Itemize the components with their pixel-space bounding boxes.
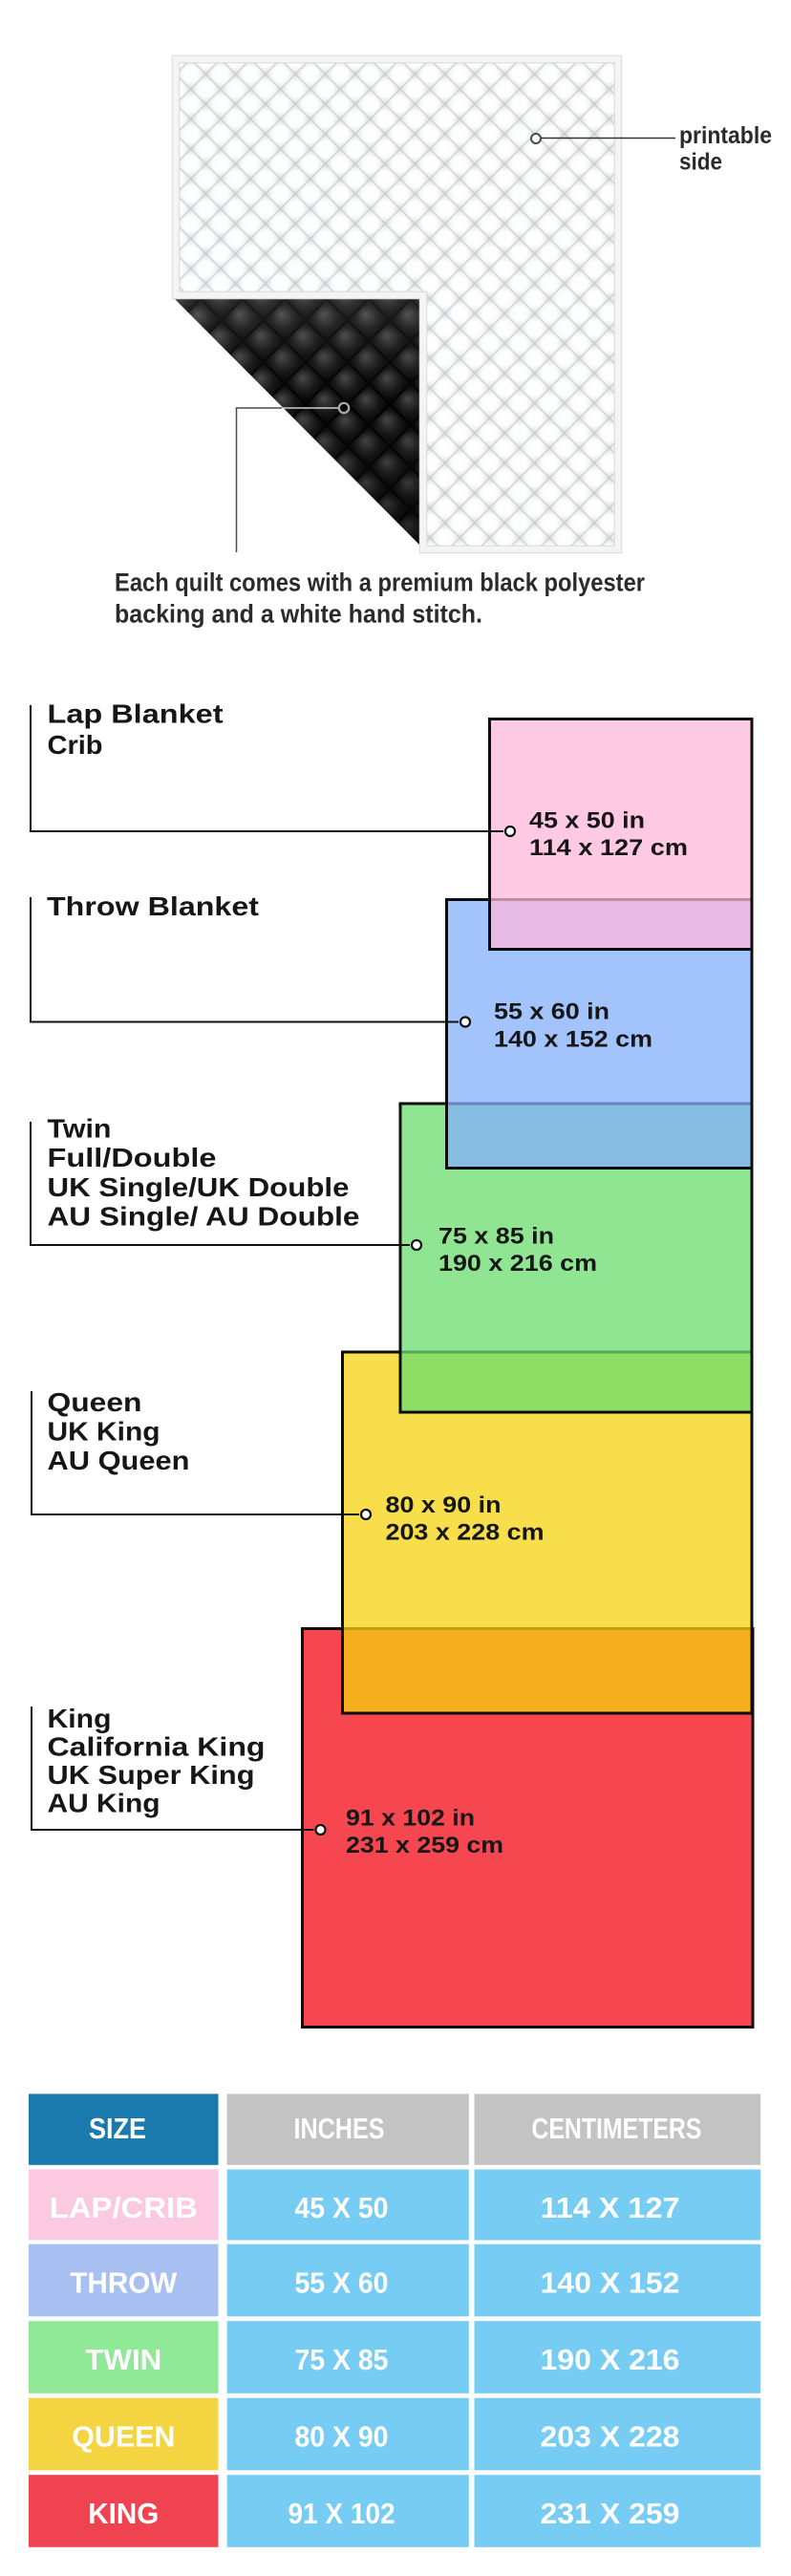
svg-text:203 X 228: 203 X 228 <box>541 2420 680 2454</box>
svg-text:SIZE: SIZE <box>89 2112 146 2145</box>
svg-text:114 X 127: 114 X 127 <box>541 2191 680 2224</box>
svg-text:80 X 90: 80 X 90 <box>295 2420 389 2454</box>
svg-text:Full/Double: Full/Double <box>48 1143 217 1172</box>
svg-text:231 X 259: 231 X 259 <box>541 2497 680 2530</box>
svg-text:AU Queen: AU Queen <box>48 1446 190 1475</box>
svg-text:King: King <box>48 1704 112 1733</box>
svg-text:Crib: Crib <box>48 730 103 760</box>
svg-text:UK Super King: UK Super King <box>48 1760 255 1790</box>
svg-text:91 x 102 in: 91 x 102 in <box>346 1806 475 1832</box>
svg-text:140 X 152: 140 X 152 <box>541 2266 680 2300</box>
svg-text:190 x 216 cm: 190 x 216 cm <box>438 1251 597 1277</box>
svg-text:114 x 127 cm: 114 x 127 cm <box>529 835 688 861</box>
svg-text:printable: printable <box>679 122 772 149</box>
svg-text:140 x 152 cm: 140 x 152 cm <box>494 1027 652 1053</box>
svg-text:45 X 50: 45 X 50 <box>295 2191 389 2224</box>
svg-text:Throw Blanket: Throw Blanket <box>47 891 259 921</box>
svg-text:THROW: THROW <box>70 2266 178 2300</box>
svg-text:Each quilt comes with a premiu: Each quilt comes with a premium black po… <box>115 569 645 597</box>
svg-text:Twin: Twin <box>48 1114 112 1144</box>
svg-text:TWIN: TWIN <box>85 2343 161 2376</box>
svg-text:CENTIMETERS: CENTIMETERS <box>531 2112 701 2145</box>
svg-text:LAP/CRIB: LAP/CRIB <box>50 2191 198 2224</box>
svg-text:side: side <box>679 149 722 176</box>
svg-text:55 X 60: 55 X 60 <box>295 2266 389 2300</box>
svg-text:KING: KING <box>88 2497 159 2530</box>
svg-text:Queen: Queen <box>48 1387 142 1417</box>
svg-text:190 X 216: 190 X 216 <box>541 2343 680 2376</box>
svg-text:QUEEN: QUEEN <box>72 2420 175 2454</box>
svg-text:AU Single/ AU Double: AU Single/ AU Double <box>48 1201 360 1231</box>
svg-text:91 X 102: 91 X 102 <box>289 2497 395 2530</box>
svg-text:INCHES: INCHES <box>294 2112 385 2145</box>
svg-text:203 x 228 cm: 203 x 228 cm <box>386 1520 545 1546</box>
svg-text:231 x 259 cm: 231 x 259 cm <box>346 1833 503 1858</box>
svg-text:California King: California King <box>48 1732 266 1762</box>
svg-text:AU King: AU King <box>48 1789 160 1818</box>
svg-text:UK King: UK King <box>48 1417 160 1447</box>
svg-text:80 x 90 in: 80 x 90 in <box>386 1492 502 1518</box>
svg-text:UK Single/UK Double: UK Single/UK Double <box>48 1172 350 1202</box>
svg-text:55 x 60 in: 55 x 60 in <box>494 999 609 1025</box>
svg-text:45 x 50 in: 45 x 50 in <box>529 808 645 834</box>
svg-text:75 x 85 in: 75 x 85 in <box>438 1224 554 1250</box>
svg-text:Lap Blanket: Lap Blanket <box>48 699 224 729</box>
svg-text:75 X 85: 75 X 85 <box>295 2343 389 2376</box>
svg-text:backing and a white hand stitc: backing and a white hand stitch. <box>115 599 482 628</box>
